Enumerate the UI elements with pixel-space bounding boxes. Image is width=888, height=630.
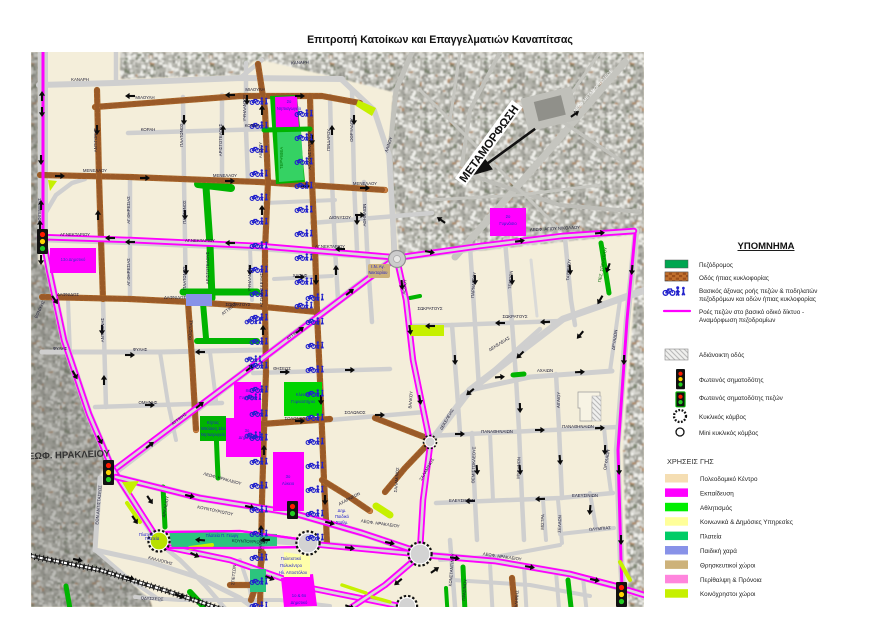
svg-text:2ο: 2ο xyxy=(287,99,292,104)
svg-text:Νηπιαγωγείο: Νηπιαγωγείο xyxy=(201,432,226,437)
svg-text:Ηλ. Αποστόλου: Ηλ. Αποστόλου xyxy=(279,570,308,575)
svg-text:ΚΟΡΑΗ: ΚΟΡΑΗ xyxy=(245,123,260,128)
svg-text:Λύκειο: Λύκειο xyxy=(282,481,295,486)
svg-text:ΜΙΣΤΡΑ: ΜΙΣΤΡΑ xyxy=(540,514,546,530)
svg-text:ΘΗΣΕΩΣ: ΘΗΣΕΩΣ xyxy=(273,366,291,371)
svg-text:ΣΟΛΩΝΟΣ: ΣΟΛΩΝΟΣ xyxy=(284,416,305,421)
svg-text:ΟΜΗΝΗΣ: ΟΜΗΝΗΣ xyxy=(139,400,158,405)
svg-text:2ο: 2ο xyxy=(506,214,511,219)
svg-text:3ο: 3ο xyxy=(286,474,291,479)
svg-text:Γυμνάσιο: Γυμνάσιο xyxy=(239,395,257,400)
svg-text:ΑΡΙΣΤΟΤΕΛΟΥΣ: ΑΡΙΣΤΟΤΕΛΟΥΣ xyxy=(218,123,223,156)
svg-text:ΦΥΛΗΣ: ΦΥΛΗΣ xyxy=(53,346,68,351)
svg-text:Κυκλικός κόμβος: Κυκλικός κόμβος xyxy=(699,413,746,421)
svg-text:ΥΨΗΛΑΝΤΟΥ: ΥΨΗΛΑΝΤΟΥ xyxy=(242,94,247,121)
svg-text:ΑΓ.ΝΕΚΤΑΡΙΟΥ: ΑΓ.ΝΕΚΤΑΡΙΟΥ xyxy=(185,238,215,243)
svg-text:Πλατεία: Πλατεία xyxy=(700,533,722,541)
svg-text:ΑΓ.ΘΗΡΕΣΙΑΣ: ΑΓ.ΘΗΡΕΣΙΑΣ xyxy=(126,196,131,224)
svg-text:Περίθαλψη & Πρόνοια: Περίθαλψη & Πρόνοια xyxy=(700,576,762,584)
svg-text:Δημοτικό: Δημοτικό xyxy=(291,600,308,605)
svg-text:ΑΓ.ΘΗΡΕΣΙΑΣ: ΑΓ.ΘΗΡΕΣΙΑΣ xyxy=(126,258,131,286)
svg-text:ΑΓ.ΚΩΝΣΤΑΝΤΙΝΟΥ: ΑΓ.ΚΩΝΣΤΑΝΤΙΝΟΥ xyxy=(307,130,312,169)
svg-text:Δημοτικό: Δημοτικό xyxy=(239,435,256,440)
svg-text:ΜΙΑΟΥΛΗ: ΜΙΑΟΥΛΗ xyxy=(245,87,264,92)
svg-text:ΜΕΝΕΛΑΟΥ: ΜΕΝΕΛΑΟΥ xyxy=(353,181,377,186)
svg-text:ΠΙΝΔΑΡΟΥ: ΠΙΝΔΑΡΟΥ xyxy=(326,129,331,151)
svg-text:Βασικός άξονας ροής πεζών & πο: Βασικός άξονας ροής πεζών & ποδηλατών xyxy=(699,287,817,295)
svg-text:Παιδική χαρά: Παιδική χαρά xyxy=(700,547,737,555)
svg-text:ΑΙΓΑΙΟΥ: ΑΙΓΑΙΟΥ xyxy=(556,392,562,408)
svg-text:ΥΠΟΜΝΗΜΑ: ΥΠΟΜΝΗΜΑ xyxy=(738,241,795,252)
svg-text:ΜΙΑΟΥΛΗ: ΜΙΑΟΥΛΗ xyxy=(135,95,154,100)
svg-text:Οδός ήπιας κυκλοφορίας: Οδός ήπιας κυκλοφορίας xyxy=(699,274,769,282)
svg-text:ΜΕΝΕΛΑΟΥ: ΜΕΝΕΛΑΟΥ xyxy=(83,168,107,173)
svg-text:Κλειστό: Κλειστό xyxy=(296,392,311,397)
svg-text:ΕΛΕΥΣΙΝΙΩΝ: ΕΛΕΥΣΙΝΙΩΝ xyxy=(572,493,598,498)
svg-text:ΑΡΙΣΤΟΤΕΛΟΥΣ: ΑΡΙΣΤΟΤΕΛΟΥΣ xyxy=(205,251,210,284)
svg-text:Αναμόρφωση πεζοδρομίων: Αναμόρφωση πεζοδρομίων xyxy=(699,316,775,324)
svg-text:ΔΑΦΝΙΔΟΣ: ΔΑΦΝΙΔΟΣ xyxy=(164,295,186,300)
svg-text:Γυμναστήριο: Γυμναστήριο xyxy=(291,399,315,404)
svg-text:1ο & 6ο: 1ο & 6ο xyxy=(292,593,307,598)
svg-text:Mini κυκλικός κόμβος: Mini κυκλικός κόμβος xyxy=(699,429,758,437)
svg-text:ΥΨΗΛΑΝΤΟΥ: ΥΨΗΛΑΝΤΟΥ xyxy=(247,264,252,291)
svg-text:3ο: 3ο xyxy=(245,428,250,433)
svg-text:Πλατεία: Πλατεία xyxy=(139,532,154,537)
svg-text:Φωτεινός σηματοδότης πεζών: Φωτεινός σηματοδότης πεζών xyxy=(699,394,783,402)
svg-text:ΣΟΛΩΝΟΣ: ΣΟΛΩΝΟΣ xyxy=(344,410,365,415)
svg-text:πεζοδρόμων και οδών ήπιας κυκλ: πεζοδρόμων και οδών ήπιας κυκλοφορίας xyxy=(699,295,816,303)
svg-text:Νεκταρίου: Νεκταρίου xyxy=(369,270,389,275)
svg-text:ΠΛΑΤΩΝΟΣ: ΠΛΑΤΩΝΟΣ xyxy=(179,123,184,147)
svg-text:ΦΥΛΗΣ: ΦΥΛΗΣ xyxy=(133,347,148,352)
svg-text:Πολυκέντρο: Πολυκέντρο xyxy=(280,563,303,568)
svg-text:ΣΩΚΡΑΤΟΥΣ: ΣΩΚΡΑΤΟΥΣ xyxy=(502,314,527,319)
svg-text:ΣΩΚΡΑΤΟΥΣ: ΣΩΚΡΑΤΟΥΣ xyxy=(417,306,442,311)
svg-text:ΠΑΝΑΘΗΝΑΙΩΝ: ΠΑΝΑΘΗΝΑΙΩΝ xyxy=(562,424,594,429)
svg-text:Νηπιαγωγείο: Νηπιαγωγείο xyxy=(277,106,302,111)
svg-text:ΠΑΝΑΘΗΝΑΙΩΝ: ΠΑΝΑΘΗΝΑΙΩΝ xyxy=(481,429,513,434)
svg-text:8ο: 8ο xyxy=(246,388,251,393)
svg-text:ΔΙΟΝΥΣΟΥ: ΔΙΟΝΥΣΟΥ xyxy=(329,215,351,220)
svg-text:ΟΘΡΥΑΔΟΥ: ΟΘΡΥΑΔΟΥ xyxy=(349,118,354,142)
svg-text:13ο Δημοτικό: 13ο Δημοτικό xyxy=(61,257,86,262)
svg-text:ΑΝΤΙΓΟΝΗΣ: ΑΝΤΙΓΟΝΗΣ xyxy=(93,127,98,152)
svg-text:ΕΛΕΥΣΙΝΙΩΝ: ΕΛΕΥΣΙΝΙΩΝ xyxy=(449,498,475,503)
svg-text:ΑΓ.ΝΕΚΤΑΡΙΟΥ: ΑΓ.ΝΕΚΤΑΡΙΟΥ xyxy=(60,232,90,237)
svg-text:Κοινωνικά & Δημόσιες Υπηρεσίες: Κοινωνικά & Δημόσιες Υπηρεσίες xyxy=(700,518,793,526)
svg-text:ΑΝΤΙΓΟΝΗΣ: ΑΝΤΙΓΟΝΗΣ xyxy=(100,317,105,342)
svg-text:Πολεοδομικό Κέντρο: Πολεοδομικό Κέντρο xyxy=(700,475,758,483)
svg-text:ΚΑΝΑΡΗ: ΚΑΝΑΡΗ xyxy=(291,60,309,66)
svg-text:ΚΑΝΑΡΗ: ΚΑΝΑΡΗ xyxy=(71,77,89,82)
svg-text:Παιδικό: Παιδικό xyxy=(335,514,350,519)
svg-text:ΑΓ.ΠΑΡΑΣΚΕΥΗΣ: ΑΓ.ΠΑΡΑΣΚΕΥΗΣ xyxy=(259,272,264,307)
svg-text:Ροές πεζών στο βασικό οδικό δί: Ροές πεζών στο βασικό οδικό δίκτυο - xyxy=(699,308,804,316)
svg-text:Κοινόχρηστοι χώροι: Κοινόχρηστοι χώροι xyxy=(700,590,756,598)
svg-text:ΙΦΙΓΕΝΕΙΑΣ: ΙΦΙΓΕΝΕΙΑΣ xyxy=(37,198,42,222)
svg-text:Δημ.: Δημ. xyxy=(338,508,347,513)
svg-text:Ι.Ν. Αγ.: Ι.Ν. Αγ. xyxy=(371,264,384,269)
svg-text:Πεζόδρομος: Πεζόδρομος xyxy=(699,261,733,269)
svg-text:Εκπαίδευση: Εκπαίδευση xyxy=(700,489,734,497)
svg-text:Κήπος: Κήπος xyxy=(207,420,219,425)
svg-text:Γυμνάσιο: Γυμνάσιο xyxy=(499,221,517,226)
svg-text:ΜΥΚΗΝΩΝ: ΜΥΚΗΝΩΝ xyxy=(516,457,522,479)
svg-text:Επιτροπή Κατοίκων και Επαγγελμ: Επιτροπή Κατοίκων και Επαγγελματιών Κανα… xyxy=(307,34,573,46)
svg-text:Πλατεία Π. Γεωργ: Πλατεία Π. Γεωργ xyxy=(206,533,240,538)
svg-text:Αδιάνοικτη οδός: Αδιάνοικτη οδός xyxy=(699,351,744,359)
svg-text:ΑΧΑΙΩΝ: ΑΧΑΙΩΝ xyxy=(537,368,553,373)
svg-text:Πολιτιστικό: Πολιτιστικό xyxy=(281,556,302,561)
svg-text:ΧΛΟΗΣ: ΧΛΟΗΣ xyxy=(293,273,308,278)
svg-text:ΜΕΝΕΛΑΟΥ: ΜΕΝΕΛΑΟΥ xyxy=(213,173,237,178)
svg-text:ΑΘΗΝΑΙΩΝ: ΑΘΗΝΑΙΩΝ xyxy=(362,204,367,227)
svg-text:ΑΙΟΛΟΥ: ΑΙΟΛΟΥ xyxy=(258,142,263,158)
svg-text:Θρησκευτικοί χώροι: Θρησκευτικοί χώροι xyxy=(700,561,756,569)
svg-text:ΑΓ.ΝΕΚΤΑΡΙΟΥ: ΑΓ.ΝΕΚΤΑΡΙΟΥ xyxy=(315,244,345,249)
svg-text:ΣΕΛΑΩΝ: ΣΕΛΑΩΝ xyxy=(557,515,563,533)
svg-text:Σταθμ.: Σταθμ. xyxy=(336,520,348,525)
svg-text:Μπόσκη 12ο: Μπόσκη 12ο xyxy=(201,426,226,431)
svg-text:ΠΛΑΤΩΝΟΣ: ΠΛΑΤΩΝΟΣ xyxy=(182,266,187,290)
svg-text:ΔΑΦΝΙΔΟΣ: ΔΑΦΝΙΔΟΣ xyxy=(57,292,79,297)
svg-text:ΚΟΡΑΗ: ΚΟΡΑΗ xyxy=(141,127,156,132)
svg-text:Αθλητισμός: Αθλητισμός xyxy=(700,504,732,512)
svg-text:ΠΛΑΤΩΝΟΣ: ΠΛΑΤΩΝΟΣ xyxy=(182,200,187,224)
svg-text:ΧΡΗΣΕΙΣ ΓΗΣ: ΧΡΗΣΕΙΣ ΓΗΣ xyxy=(667,457,714,466)
svg-text:ΤΕΡΨΙΘΕΑ: ΤΕΡΨΙΘΕΑ xyxy=(279,147,284,169)
svg-text:Φωτεινός σηματοδότης: Φωτεινός σηματοδότης xyxy=(699,376,763,384)
